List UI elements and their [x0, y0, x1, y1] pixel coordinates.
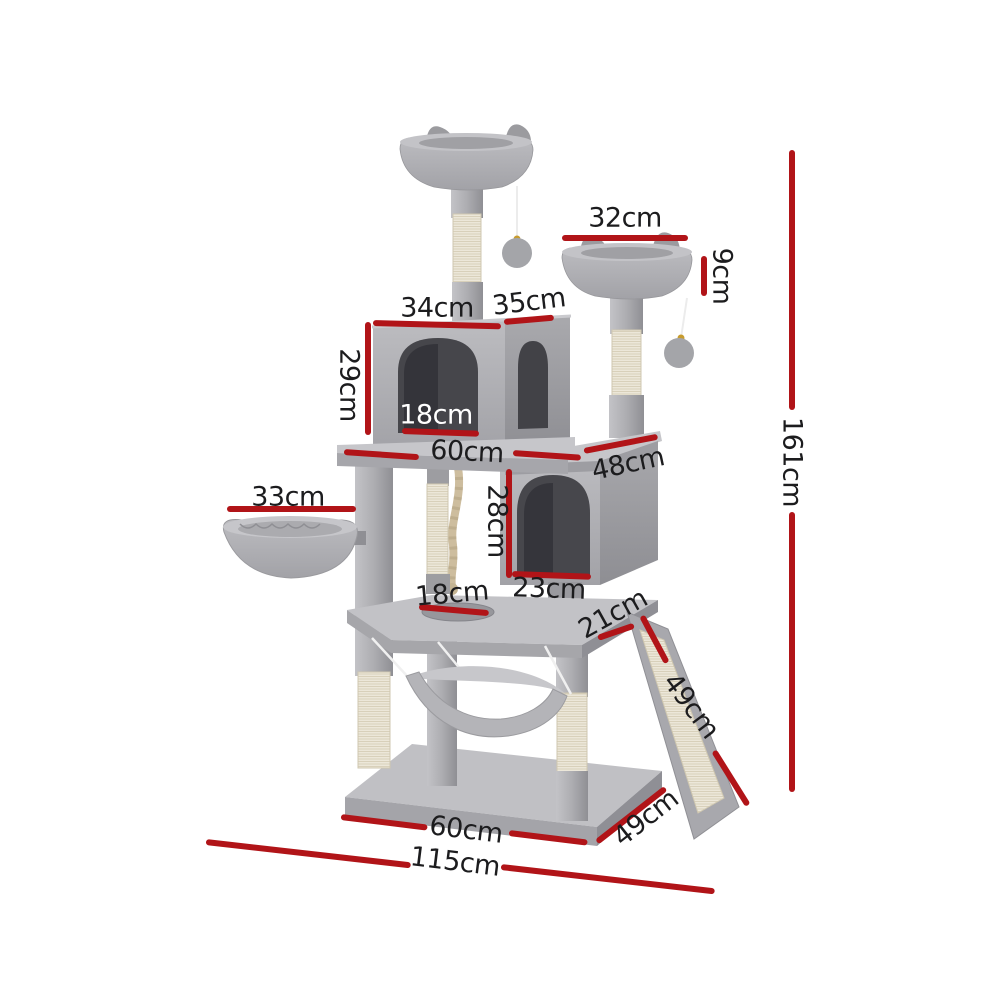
- dim-label-lower-condo-door-width: 23cm: [512, 574, 586, 604]
- dim-label-top-perch-height: 9cm: [709, 248, 736, 305]
- middle-scratching-post: [426, 468, 450, 594]
- dim-line-top-perch-width: [562, 235, 688, 241]
- dimension-diagram: 32cm 9cm 34cm 35cm 29cm 18cm 60cm 48cm 3…: [0, 0, 1000, 1000]
- right-post: [556, 645, 588, 821]
- dim-line-upper-condo-height: [365, 322, 371, 435]
- dim-label-middle-platform-width: 60cm: [430, 437, 505, 468]
- dim-label-top-perch-width: 32cm: [588, 205, 662, 232]
- dim-label-upper-condo-height: 29cm: [336, 348, 363, 422]
- upper-condo-side-window: [518, 341, 548, 429]
- second-perch-pole: [609, 294, 644, 438]
- dim-label-total-height: 161cm: [779, 417, 806, 507]
- pompom-1: [502, 238, 532, 268]
- pompom-string-2: [681, 298, 687, 338]
- basket: [223, 516, 366, 578]
- dim-line-total-height-a: [789, 150, 795, 410]
- dim-label-upper-condo-front-width: 34cm: [400, 295, 474, 322]
- dim-line-total-height-b: [789, 512, 795, 792]
- dim-label-basket-width: 33cm: [251, 484, 325, 511]
- top-perch: [400, 124, 533, 190]
- pompom-2: [664, 338, 694, 368]
- dim-label-upper-condo-door-width: 18cm: [399, 402, 473, 429]
- dim-label-lower-condo-height: 28cm: [484, 484, 511, 558]
- second-perch: [562, 232, 692, 299]
- dim-label-lower-platform-hole-width: 18cm: [414, 577, 490, 610]
